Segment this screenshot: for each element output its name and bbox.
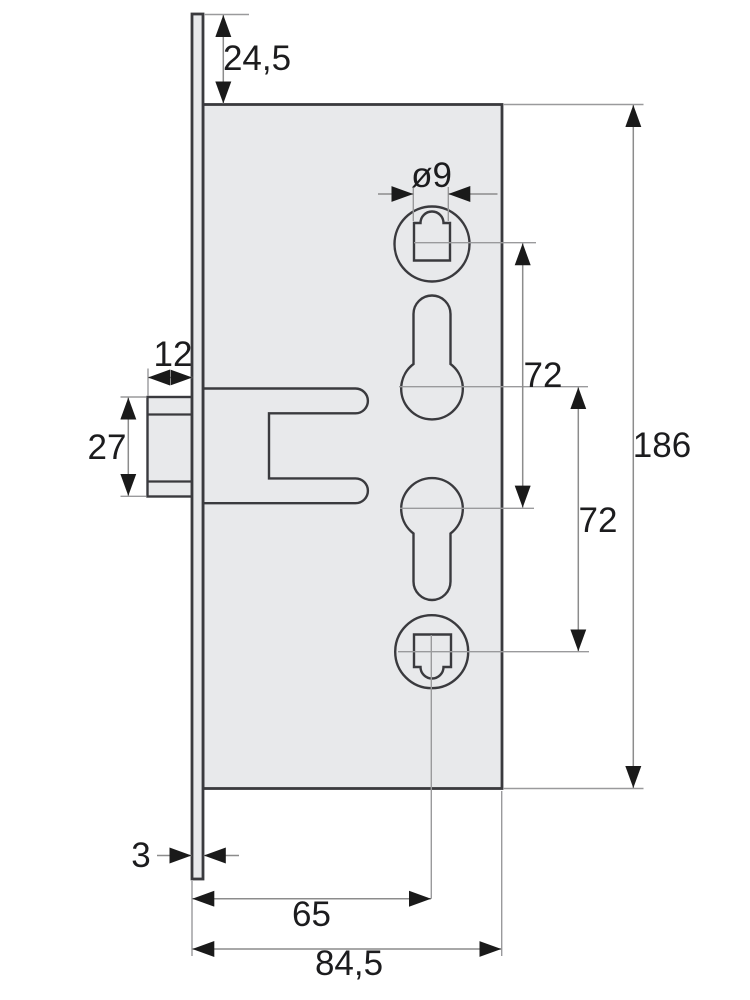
dimension-label: 186: [633, 426, 691, 465]
dimension-label: ø9: [411, 156, 452, 195]
dimension-label: 12: [154, 335, 193, 374]
dimension-label: 24,5: [223, 39, 291, 78]
dimension-overall-depth: 84,5: [192, 791, 501, 983]
drawing-canvas: 24,5 ø9 12 27 72 72 186: [0, 0, 750, 1000]
dimension-latch-projection: 12: [148, 335, 192, 396]
dimension-case-height: 186: [503, 105, 691, 789]
dimension-label: 72: [524, 356, 563, 395]
lock-technical-drawing: 24,5 ø9 12 27 72 72 186: [0, 0, 750, 1000]
dimension-follower-to-cylinder: 72: [523, 243, 563, 507]
dimension-cylinder-to-follower: 72: [578, 387, 617, 651]
lock-case-body: [203, 105, 502, 789]
dimension-label: 27: [88, 428, 127, 467]
dimension-latch-height: 27: [88, 397, 146, 496]
dimension-label: 3: [131, 836, 150, 875]
dimension-faceplate-thickness: 3: [131, 836, 239, 875]
lock-parts: [148, 14, 503, 879]
dimension-label: 72: [579, 501, 618, 540]
dimension-backset: 65: [192, 881, 431, 956]
faceplate: [192, 14, 203, 879]
dimension-label: 84,5: [315, 944, 383, 983]
dimension-label: 65: [292, 895, 331, 934]
dimension-faceplate-top-to-case: 24,5: [204, 15, 291, 104]
